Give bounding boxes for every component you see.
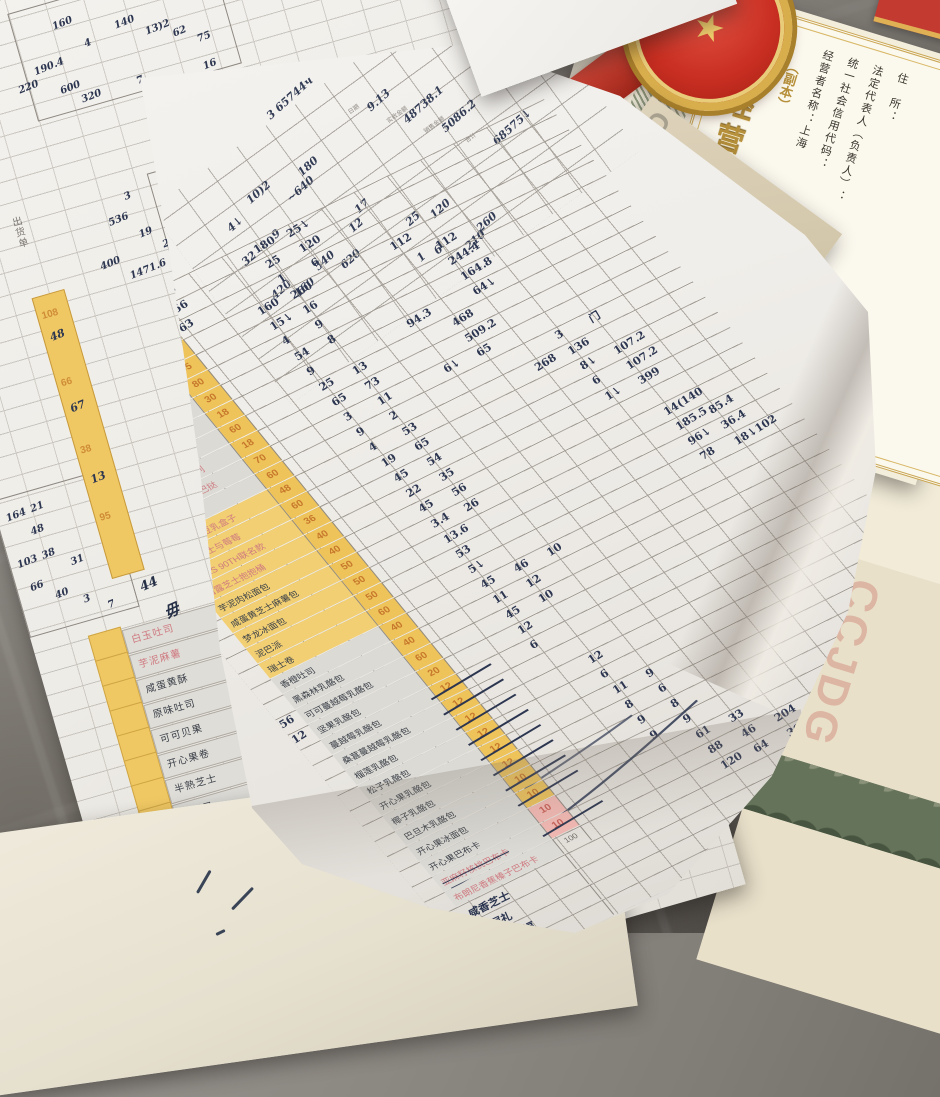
- handwritten-number: 6: [527, 639, 541, 651]
- handwritten-number: 1: [275, 273, 289, 285]
- handwritten-number: 22: [403, 483, 424, 499]
- handwritten-number: 12: [289, 729, 310, 745]
- printed-qty: 66: [60, 376, 74, 390]
- handwritten-number: 53: [399, 421, 420, 437]
- handwritten-number: 5086.2: [439, 98, 478, 134]
- printed-header-label: 日期: [348, 104, 361, 116]
- pen-mark: [196, 870, 212, 894]
- handwritten-number: 65: [474, 342, 495, 358]
- handwritten-number: 13: [350, 360, 371, 376]
- handwritten-number: 67: [69, 398, 87, 414]
- handwritten-number: 6: [655, 682, 669, 694]
- handwritten-number: 19: [378, 452, 399, 468]
- handwritten-number: 12: [523, 573, 544, 589]
- handwritten-number: 8↓: [577, 354, 599, 371]
- handwritten-number: 16: [300, 299, 321, 315]
- handwritten-number: 10: [544, 542, 565, 558]
- handwritten-number: 3: [341, 411, 355, 423]
- handwritten-number: 9: [643, 667, 657, 679]
- handwritten-number: 3 65744ч: [265, 75, 315, 122]
- printed-qty: 108: [41, 307, 60, 322]
- handwritten-number: 8: [622, 698, 636, 710]
- pen-mark: [231, 887, 254, 911]
- handwritten-number: 56: [449, 482, 470, 498]
- handwritten-number: 45: [478, 574, 499, 590]
- handwritten-number: 180: [296, 155, 320, 179]
- handwritten-number: 9: [304, 365, 318, 377]
- handwritten-number: 25: [263, 254, 284, 270]
- handwritten-number: 8: [325, 334, 339, 346]
- printed-qty: 95: [98, 510, 112, 524]
- handwritten-number: 5↓: [465, 558, 487, 575]
- handwritten-number: 25: [316, 376, 337, 392]
- handwritten-number: 26: [461, 497, 482, 513]
- handwritten-number: 48: [48, 327, 66, 343]
- handwritten-number: 10)2: [244, 179, 272, 206]
- handwritten-number: 53: [453, 544, 474, 560]
- handwritten-number: ~640: [285, 174, 316, 204]
- handwritten-number: 4: [279, 335, 293, 347]
- printed-qty: 38: [79, 443, 93, 457]
- handwritten-number: 11: [610, 679, 631, 695]
- handwritten-number: 9: [635, 714, 649, 726]
- handwritten-number: 3.4: [428, 511, 452, 529]
- handwritten-number: 8: [668, 697, 682, 709]
- handwritten-number: 73: [362, 375, 383, 391]
- handwritten-number: 54: [424, 451, 445, 467]
- handwritten-number: 65: [329, 392, 350, 408]
- handwritten-number: 45: [416, 498, 437, 514]
- handwritten-number: 10: [536, 588, 557, 604]
- handwritten-number: 3: [552, 329, 566, 341]
- handwritten-number: 4: [366, 441, 380, 453]
- handwritten-number: 4↓: [225, 214, 245, 233]
- handwritten-number: 12: [585, 649, 606, 665]
- handwritten-number: 1↓: [602, 385, 624, 402]
- handwritten-number: 9: [353, 426, 367, 438]
- handwritten-number: 11: [374, 391, 395, 407]
- handwritten-number: 6: [589, 374, 603, 386]
- handwritten-number: 13: [89, 469, 107, 485]
- handwritten-number: 6: [308, 257, 322, 269]
- handwritten-number: 2: [387, 410, 401, 422]
- handwritten-number: 45: [391, 468, 412, 484]
- handwritten-number: 6: [597, 668, 611, 680]
- handwritten-number: 门: [585, 311, 602, 325]
- handwritten-number: 12: [515, 620, 536, 636]
- handwritten-number: 9.13: [365, 87, 392, 113]
- handwritten-number: 46: [511, 558, 532, 574]
- handwritten-number: 11: [490, 589, 511, 605]
- handwritten-number: 65: [412, 436, 433, 452]
- photo-of-papers-on-marble-table: { "license": { "title": "食品经营许可证", "subt…: [0, 0, 940, 933]
- handwritten-number: 45: [502, 604, 523, 620]
- handwritten-number: 9: [312, 318, 326, 330]
- handwritten-number: 35: [436, 467, 457, 483]
- handwritten-number: 56: [276, 714, 297, 730]
- pen-mark: [215, 929, 225, 936]
- handwritten-number: 54: [292, 346, 313, 362]
- handwritten-number: 9: [680, 713, 694, 725]
- handwritten-number: 6↓: [441, 357, 463, 374]
